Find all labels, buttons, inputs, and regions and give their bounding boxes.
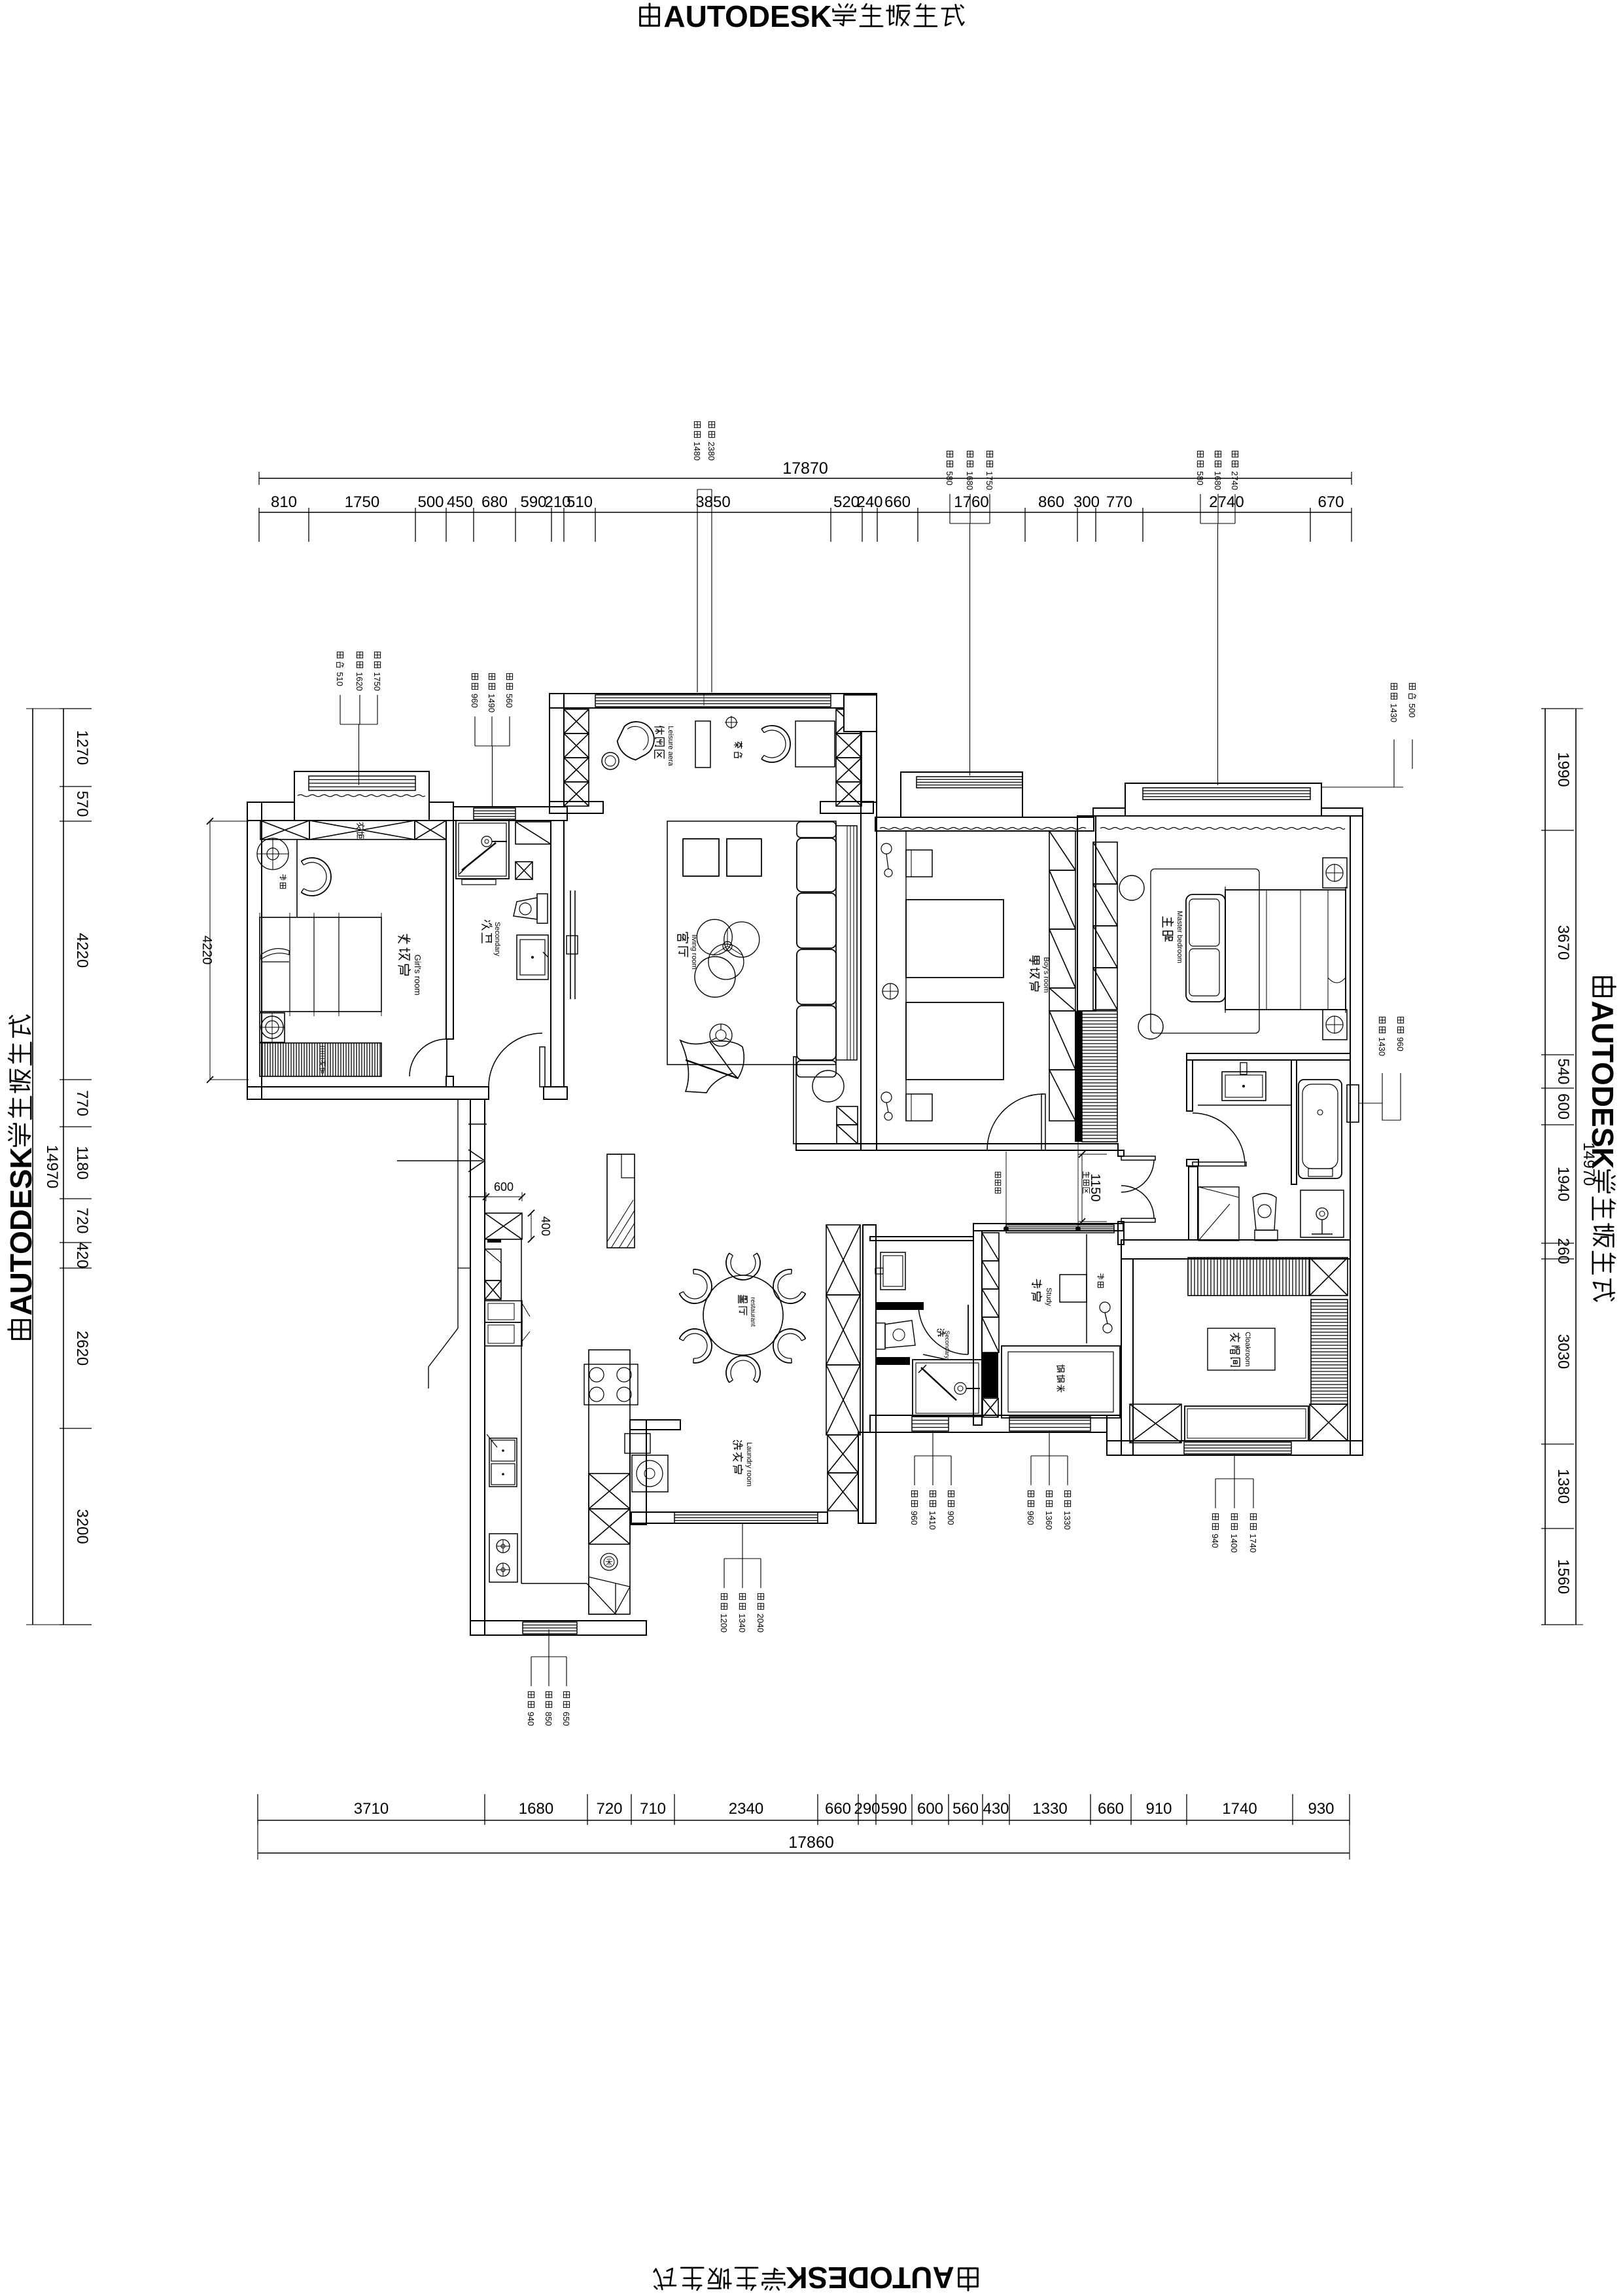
- svg-text:580: 580: [1195, 471, 1205, 486]
- svg-text:400: 400: [539, 1216, 552, 1236]
- svg-text:17860: 17860: [788, 1833, 834, 1852]
- svg-text:Master bedroom: Master bedroom: [1176, 911, 1183, 963]
- svg-text:1750: 1750: [985, 471, 994, 490]
- svg-text:2380: 2380: [707, 442, 716, 461]
- svg-text:770: 770: [73, 1090, 91, 1116]
- svg-text:Cloakroom: Cloakroom: [1244, 1332, 1251, 1366]
- svg-text:Secondary: Secondary: [493, 922, 501, 957]
- svg-text:910: 910: [1145, 1800, 1172, 1818]
- svg-text:520: 520: [833, 493, 860, 511]
- svg-text:960: 960: [1026, 1511, 1036, 1525]
- svg-text:560: 560: [504, 694, 514, 708]
- svg-text:1270: 1270: [73, 730, 91, 765]
- svg-text:540: 540: [1554, 1058, 1572, 1084]
- svg-text:770: 770: [1106, 493, 1132, 511]
- svg-text:Boy's room: Boy's room: [1042, 957, 1050, 993]
- svg-text:300: 300: [1073, 493, 1100, 511]
- svg-text:1620: 1620: [355, 672, 364, 691]
- svg-text:660: 660: [884, 493, 911, 511]
- svg-text:1760: 1760: [954, 493, 988, 511]
- svg-text:930: 930: [1308, 1800, 1334, 1818]
- svg-text:1430: 1430: [1389, 703, 1399, 722]
- svg-text:1430: 1430: [1377, 1037, 1387, 1056]
- svg-text:850: 850: [544, 1712, 553, 1726]
- svg-text:restaurant: restaurant: [749, 1297, 756, 1326]
- svg-text:660: 660: [825, 1800, 851, 1818]
- svg-text:810: 810: [271, 493, 297, 511]
- svg-text:720: 720: [596, 1800, 622, 1818]
- svg-text:600: 600: [1554, 1093, 1572, 1120]
- svg-text:1380: 1380: [1554, 1469, 1572, 1504]
- svg-text:1180: 1180: [73, 1146, 91, 1180]
- svg-text:1340: 1340: [737, 1614, 747, 1633]
- svg-text:600: 600: [494, 1180, 514, 1193]
- svg-text:1330: 1330: [1062, 1511, 1072, 1530]
- svg-text:4220: 4220: [200, 936, 214, 965]
- svg-text:1680: 1680: [965, 471, 975, 490]
- svg-text:1680: 1680: [1213, 471, 1223, 490]
- svg-text:1400: 1400: [1229, 1534, 1239, 1553]
- svg-text:1360: 1360: [1044, 1511, 1054, 1530]
- svg-text:3670: 3670: [1554, 925, 1572, 960]
- svg-text:960: 960: [470, 694, 480, 708]
- svg-text:2040: 2040: [756, 1614, 765, 1633]
- svg-text:3030: 3030: [1554, 1334, 1572, 1369]
- svg-text:2340: 2340: [729, 1800, 763, 1818]
- svg-text:900: 900: [946, 1511, 956, 1525]
- svg-text:1990: 1990: [1554, 752, 1572, 786]
- svg-text:14970: 14970: [1580, 1142, 1597, 1186]
- svg-text:500: 500: [1407, 703, 1417, 718]
- svg-text:860: 860: [1038, 493, 1064, 511]
- svg-text:4220: 4220: [73, 933, 91, 968]
- svg-text:510: 510: [335, 672, 345, 686]
- svg-text:600: 600: [917, 1800, 943, 1818]
- svg-text:720: 720: [73, 1207, 91, 1233]
- svg-text:1480: 1480: [692, 442, 702, 461]
- svg-text:260: 260: [1554, 1238, 1572, 1264]
- svg-text:560: 560: [952, 1800, 979, 1818]
- svg-text:3710: 3710: [354, 1800, 389, 1818]
- svg-text:430: 430: [983, 1800, 1009, 1818]
- svg-text:510: 510: [567, 493, 593, 511]
- svg-text:1150: 1150: [1088, 1173, 1102, 1201]
- svg-text:1740: 1740: [1248, 1534, 1258, 1553]
- svg-text:AUTODESK: AUTODESK: [786, 2261, 954, 2295]
- svg-text:710: 710: [640, 1800, 666, 1818]
- svg-text:680: 680: [481, 493, 508, 511]
- svg-text:960: 960: [909, 1511, 919, 1525]
- svg-text:Study: Study: [1045, 1288, 1053, 1307]
- svg-text:450: 450: [447, 493, 473, 511]
- svg-text:17870: 17870: [782, 459, 828, 478]
- svg-text:650: 650: [561, 1712, 571, 1726]
- svg-text:940: 940: [526, 1712, 536, 1726]
- svg-text:2740: 2740: [1230, 471, 1240, 490]
- svg-text:3200: 3200: [73, 1509, 91, 1544]
- svg-text:14970: 14970: [43, 1145, 61, 1189]
- svg-text:590: 590: [881, 1800, 907, 1818]
- svg-text:Secondary: Secondary: [944, 1330, 951, 1359]
- svg-text:Leisure aera: Leisure aera: [667, 726, 674, 766]
- svg-text:Girl's room: Girl's room: [413, 955, 423, 995]
- svg-text:1560: 1560: [1554, 1559, 1572, 1594]
- svg-text:580: 580: [945, 471, 954, 486]
- svg-text:2620: 2620: [73, 1331, 91, 1366]
- svg-text:570: 570: [73, 790, 91, 817]
- svg-text:960: 960: [1395, 1037, 1405, 1051]
- svg-text:590: 590: [520, 493, 546, 511]
- svg-text:940: 940: [1210, 1534, 1220, 1548]
- svg-text:2740: 2740: [1209, 493, 1244, 511]
- svg-text:240: 240: [856, 493, 882, 511]
- svg-text:670: 670: [1318, 493, 1344, 511]
- svg-text:1740: 1740: [1222, 1800, 1257, 1818]
- svg-text:1330: 1330: [1032, 1800, 1067, 1818]
- svg-text:3850: 3850: [695, 493, 730, 511]
- svg-text:AUTODESK: AUTODESK: [663, 0, 831, 33]
- svg-text:420: 420: [73, 1242, 91, 1268]
- svg-text:1410: 1410: [928, 1511, 937, 1530]
- svg-text:500: 500: [417, 493, 444, 511]
- svg-text:1750: 1750: [372, 672, 382, 691]
- svg-text:1680: 1680: [519, 1800, 553, 1818]
- svg-text:1490: 1490: [487, 694, 497, 713]
- svg-text:living room: living room: [690, 934, 698, 969]
- svg-text:290: 290: [854, 1800, 880, 1818]
- svg-text:1750: 1750: [345, 493, 379, 511]
- svg-text:660: 660: [1098, 1800, 1124, 1818]
- svg-text:Laundry room: Laundry room: [745, 1442, 753, 1487]
- svg-text:1200: 1200: [719, 1614, 729, 1633]
- svg-text:1940: 1940: [1554, 1167, 1572, 1201]
